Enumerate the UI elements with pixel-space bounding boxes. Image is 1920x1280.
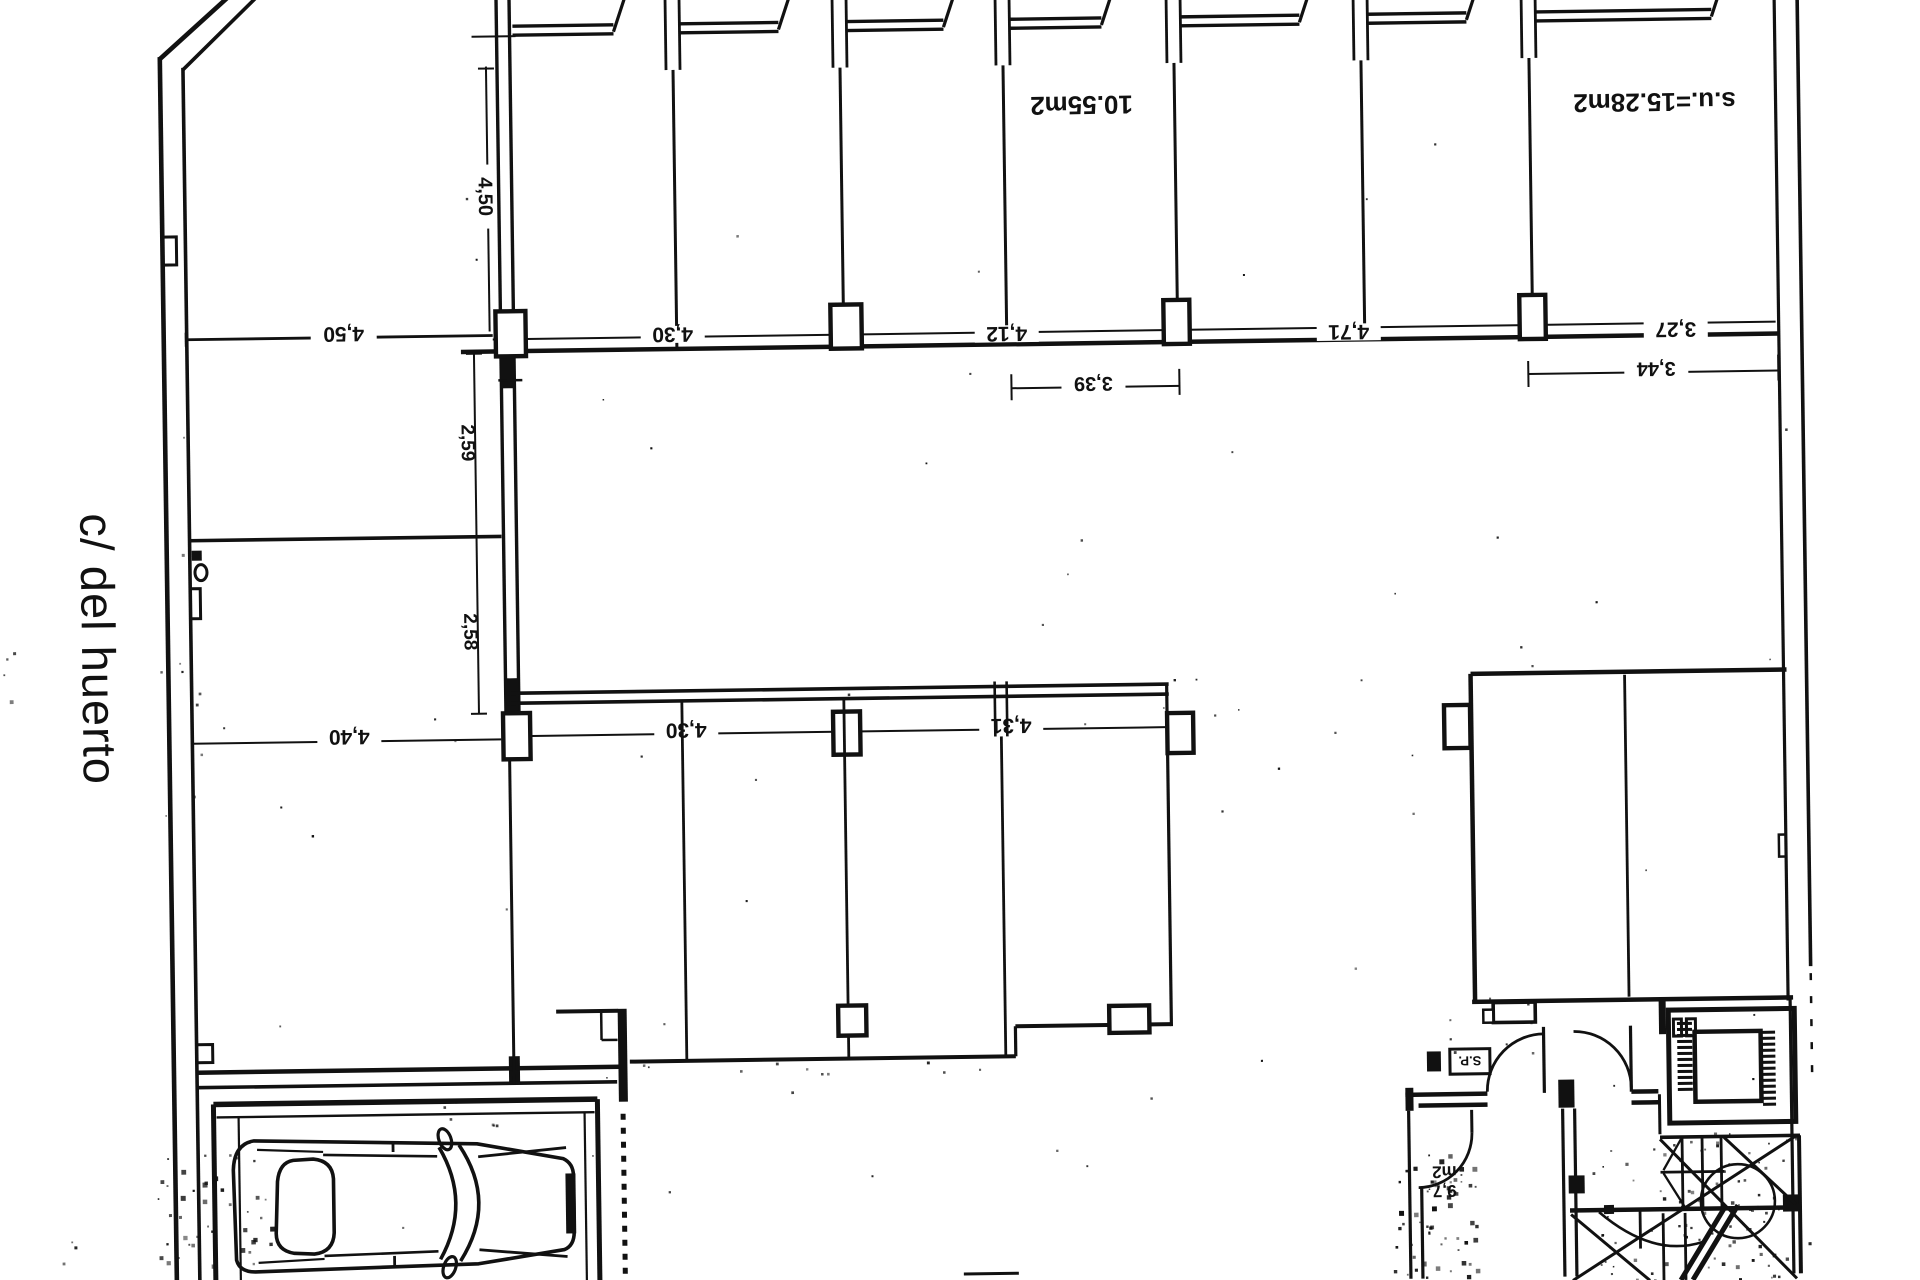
svg-text:3,39: 3,39 — [1074, 372, 1113, 395]
svg-text:4,71: 4,71 — [1328, 320, 1370, 344]
svg-text:2,59: 2,59 — [456, 424, 478, 461]
svg-text:10.55m2: 10.55m2 — [1030, 90, 1133, 121]
svg-text:4,12: 4,12 — [986, 322, 1027, 346]
svg-text:S.P.: S.P. — [1458, 1053, 1481, 1068]
svg-text:4,50: 4,50 — [323, 322, 364, 346]
svg-text:4,30: 4,30 — [652, 322, 693, 346]
svg-text:4,30: 4,30 — [666, 718, 707, 742]
svg-text:3,44: 3,44 — [1636, 357, 1676, 380]
svg-text:s.u.=15.28m2: s.u.=15.28m2 — [1573, 86, 1736, 118]
svg-text:3,27: 3,27 — [1655, 317, 1696, 341]
svg-text:4,40: 4,40 — [329, 725, 370, 749]
svg-text:c/ del huerto: c/ del huerto — [70, 513, 127, 785]
svg-text:4,50: 4,50 — [473, 177, 496, 216]
svg-text:2,58: 2,58 — [459, 613, 481, 650]
